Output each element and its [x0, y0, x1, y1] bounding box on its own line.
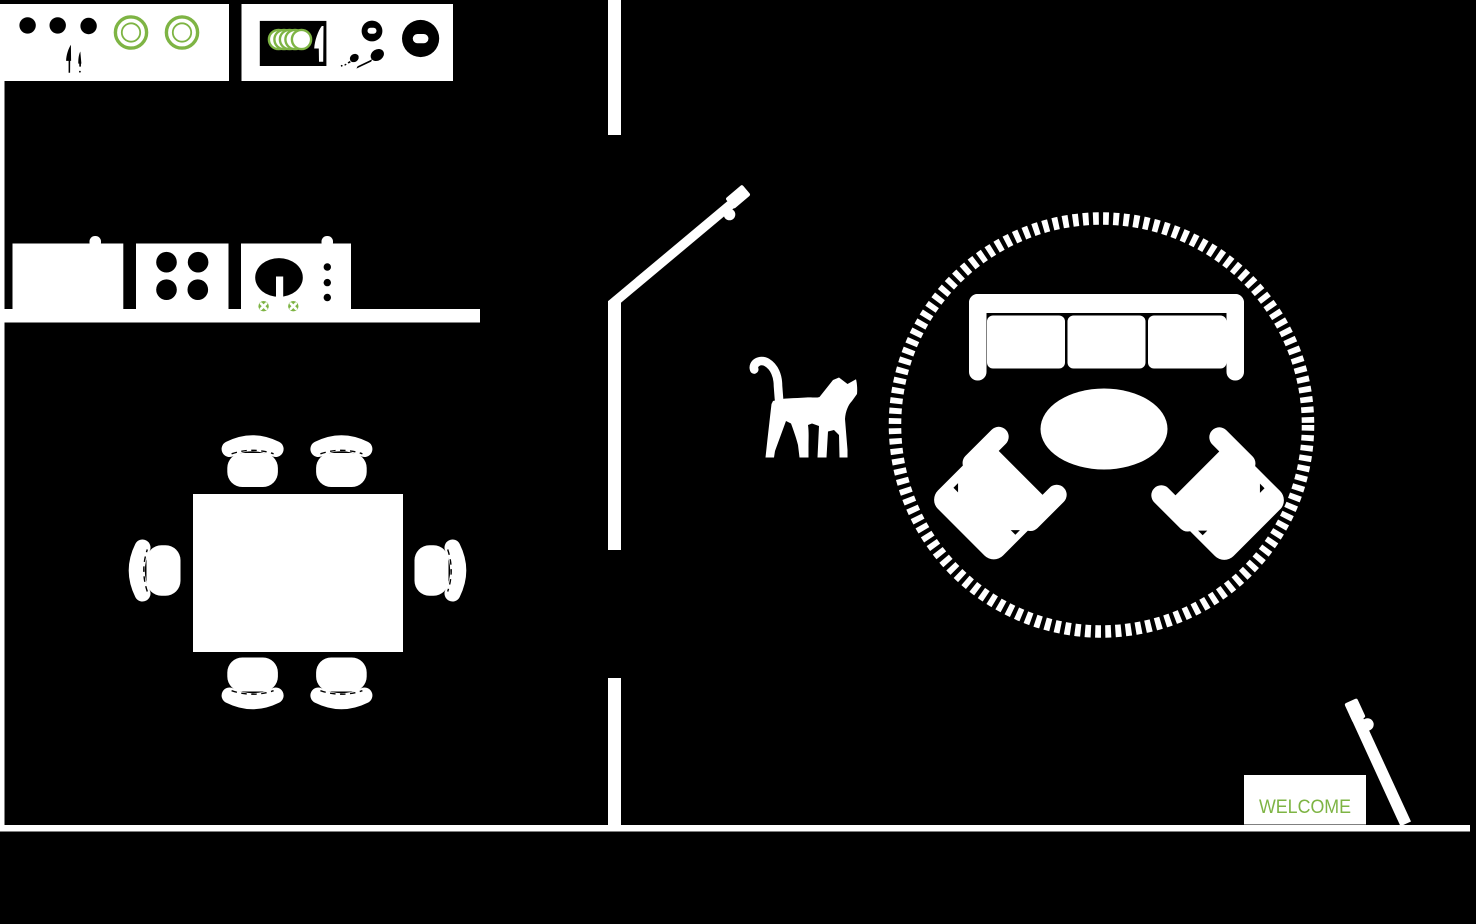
svg-text:WELCOME: WELCOME: [1259, 796, 1351, 818]
